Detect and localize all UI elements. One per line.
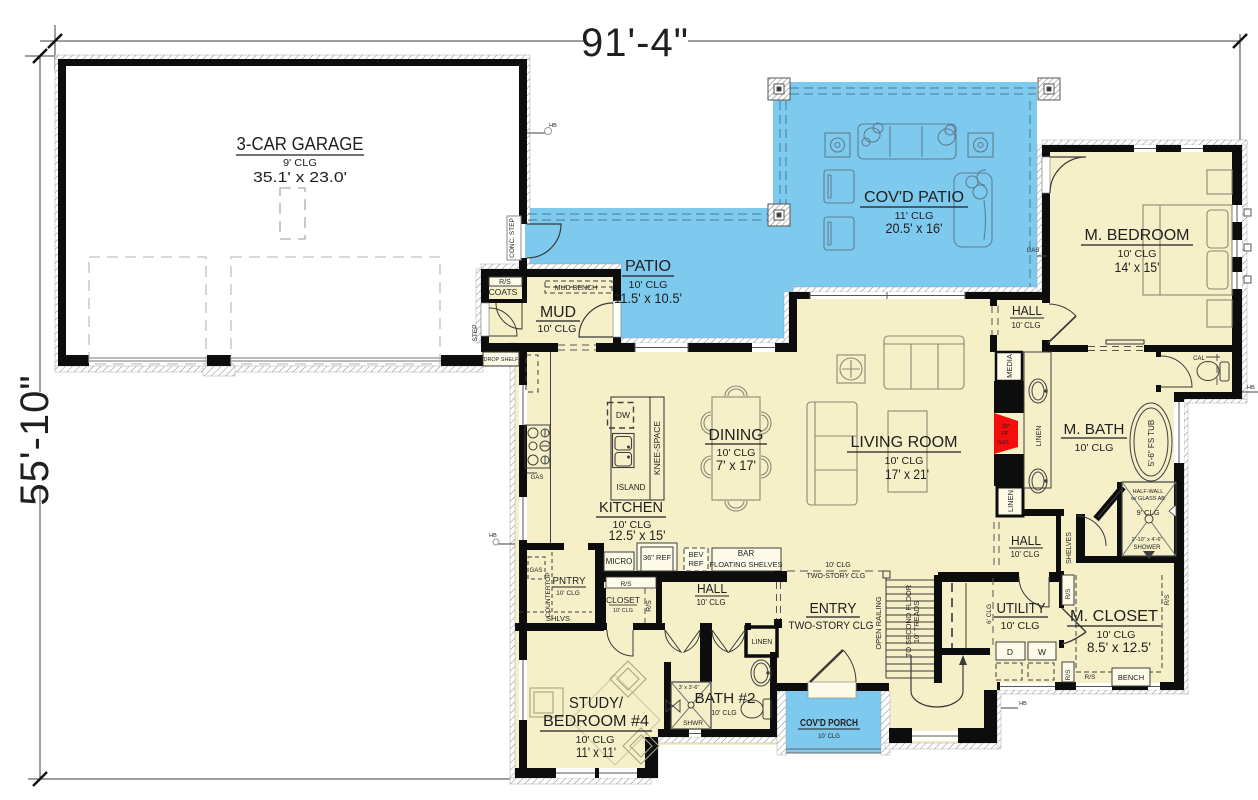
svg-text:REF: REF — [689, 559, 704, 568]
svg-text:11' x 11': 11' x 11' — [576, 745, 616, 760]
svg-text:5'-6" FS TUB: 5'-6" FS TUB — [1147, 420, 1156, 466]
svg-text:D: D — [1007, 647, 1013, 657]
svg-text:HB: HB — [489, 533, 497, 539]
svg-text:PATIO: PATIO — [625, 258, 671, 275]
svg-text:GAS: GAS — [1027, 248, 1040, 254]
svg-text:3' x 3'-6": 3' x 3'-6" — [679, 685, 700, 691]
svg-text:GAS: GAS — [531, 475, 544, 481]
svg-text:10' CLG: 10' CLG — [1010, 550, 1039, 559]
svg-text:TWO-STORY CLG: TWO-STORY CLG — [807, 573, 866, 580]
svg-text:BATH #2: BATH #2 — [695, 690, 756, 707]
svg-text:HALL: HALL — [1011, 534, 1041, 548]
svg-text:DROP SHELF: DROP SHELF — [483, 357, 519, 363]
svg-text:BENCH: BENCH — [1118, 673, 1144, 682]
svg-text:GAS: GAS — [997, 440, 1009, 446]
svg-text:10' CLG: 10' CLG — [538, 323, 577, 335]
svg-text:OPEN RAILING: OPEN RAILING — [874, 596, 883, 650]
svg-text:R/S: R/S — [1164, 594, 1171, 606]
svg-text:M. BATH: M. BATH — [1064, 421, 1125, 438]
svg-text:HB: HB — [549, 123, 557, 129]
svg-text:35.1' x 23.0': 35.1' x 23.0' — [253, 169, 347, 186]
svg-text:ISLAND: ISLAND — [617, 483, 646, 492]
svg-text:SHWR: SHWR — [683, 720, 703, 727]
svg-text:10' CLG: 10' CLG — [825, 562, 850, 569]
svg-text:36" REF: 36" REF — [643, 553, 672, 562]
svg-text:LINEN: LINEN — [1006, 490, 1015, 512]
svg-text:HB: HB — [1247, 385, 1255, 391]
svg-text:R/S: R/S — [621, 581, 633, 588]
svg-text:W: W — [1038, 647, 1046, 657]
svg-text:BAR: BAR — [738, 549, 755, 558]
svg-text:10' CLG: 10' CLG — [556, 590, 580, 597]
svg-text:10' CLG: 10' CLG — [1118, 248, 1157, 260]
svg-text:CAL: CAL — [1193, 356, 1205, 362]
svg-text:R/S: R/S — [499, 279, 511, 286]
svg-text:CONC. STEP: CONC. STEP — [509, 218, 516, 258]
svg-text:MEDIA: MEDIA — [1005, 354, 1014, 378]
svg-text:R/S: R/S — [646, 600, 653, 612]
svg-text:BEDROOM #4: BEDROOM #4 — [543, 713, 649, 730]
svg-text:12.5' x 15': 12.5' x 15' — [609, 528, 666, 543]
svg-text:LINEN: LINEN — [1036, 426, 1043, 447]
svg-text:MICRO: MICRO — [606, 557, 633, 566]
svg-text:CLOSET: CLOSET — [606, 595, 640, 605]
svg-text:LIVING ROOM: LIVING ROOM — [851, 434, 958, 451]
svg-text:6' CLG: 6' CLG — [986, 604, 993, 624]
svg-text:10' CLG: 10' CLG — [1075, 442, 1114, 454]
svg-text:17' x 21': 17' x 21' — [885, 467, 929, 482]
svg-text:R/S: R/S — [1065, 588, 1072, 600]
svg-text:10' CLG: 10' CLG — [1011, 321, 1040, 330]
svg-text:SHOWER: SHOWER — [1134, 545, 1162, 551]
svg-text:UTILITY: UTILITY — [997, 600, 1046, 617]
svg-text:9' CLG: 9' CLG — [283, 157, 317, 169]
svg-text:7' x 17': 7' x 17' — [716, 458, 756, 473]
svg-text:2'-10" x 4'-6": 2'-10" x 4'-6" — [1132, 537, 1163, 543]
svg-text:HALF-WALL: HALF-WALL — [1133, 489, 1164, 495]
svg-text:10' CLG: 10' CLG — [818, 734, 840, 740]
svg-text:9' CLG: 9' CLG — [1136, 508, 1159, 517]
svg-text:STEP: STEP — [472, 325, 479, 342]
svg-text:KITCHEN: KITCHEN — [599, 499, 663, 516]
svg-text:55'-10": 55'-10" — [13, 374, 57, 505]
svg-text:10' CLG: 10' CLG — [1001, 620, 1040, 632]
svg-text:MUD: MUD — [540, 304, 576, 321]
svg-text:HALL: HALL — [697, 582, 727, 596]
svg-text:COATS: COATS — [489, 287, 518, 297]
svg-text:10' CLG: 10' CLG — [613, 608, 633, 614]
svg-text:11.5' x 10.5': 11.5' x 10.5' — [614, 291, 682, 306]
svg-text:KNEE-SPACE: KNEE-SPACE — [652, 421, 662, 475]
svg-text:DW: DW — [616, 410, 630, 420]
svg-text:M. BEDROOM: M. BEDROOM — [1085, 227, 1190, 244]
svg-text:14' x 15': 14' x 15' — [1115, 260, 1160, 275]
svg-text:ENTRY: ENTRY — [810, 600, 857, 617]
svg-text:COV'D PATIO: COV'D PATIO — [864, 189, 964, 206]
svg-text:MUD BENCH: MUD BENCH — [555, 285, 597, 292]
svg-text:10' CLG: 10' CLG — [711, 710, 736, 717]
svg-text:R/S: R/S — [1065, 669, 1072, 681]
svg-text:91'-4": 91'-4" — [581, 21, 689, 65]
svg-text:FLOATING SHELVES: FLOATING SHELVES — [709, 560, 782, 569]
svg-text:3-CAR GARAGE: 3-CAR GARAGE — [237, 134, 364, 154]
svg-text:SHELVES: SHELVES — [1066, 532, 1073, 564]
svg-text:HB: HB — [1019, 701, 1027, 707]
svg-text:10' CLG: 10' CLG — [629, 279, 668, 291]
svg-text:10' CLG: 10' CLG — [885, 455, 924, 467]
svg-text:8.5' x 12.5': 8.5' x 12.5' — [1087, 640, 1151, 655]
svg-text:10' CLG: 10' CLG — [696, 598, 725, 607]
svg-text:10' TREADS: 10' TREADS — [912, 601, 921, 643]
svg-text:LINEN: LINEN — [752, 639, 773, 646]
svg-text:COUNTERTOP: COUNTERTOP — [545, 572, 552, 617]
svg-text:FP: FP — [1001, 431, 1008, 437]
svg-text:BEV: BEV — [688, 550, 703, 559]
svg-text:36": 36" — [1002, 424, 1010, 430]
svg-text:GAS: GAS — [530, 568, 543, 574]
svg-text:20.5' x 16': 20.5' x 16' — [886, 221, 943, 236]
svg-text:M. CLOSET: M. CLOSET — [1070, 608, 1158, 625]
svg-text:R/S: R/S — [1085, 674, 1097, 681]
svg-text:TWO-STORY CLG: TWO-STORY CLG — [789, 620, 874, 632]
svg-text:w/ GLASS AB: w/ GLASS AB — [1130, 496, 1165, 502]
svg-text:COV'D PORCH: COV'D PORCH — [800, 718, 858, 729]
svg-text:STUDY/: STUDY/ — [569, 695, 624, 712]
svg-text:PNTRY: PNTRY — [553, 576, 586, 587]
svg-text:DINING: DINING — [709, 427, 764, 444]
svg-text:HALL: HALL — [1012, 304, 1042, 318]
